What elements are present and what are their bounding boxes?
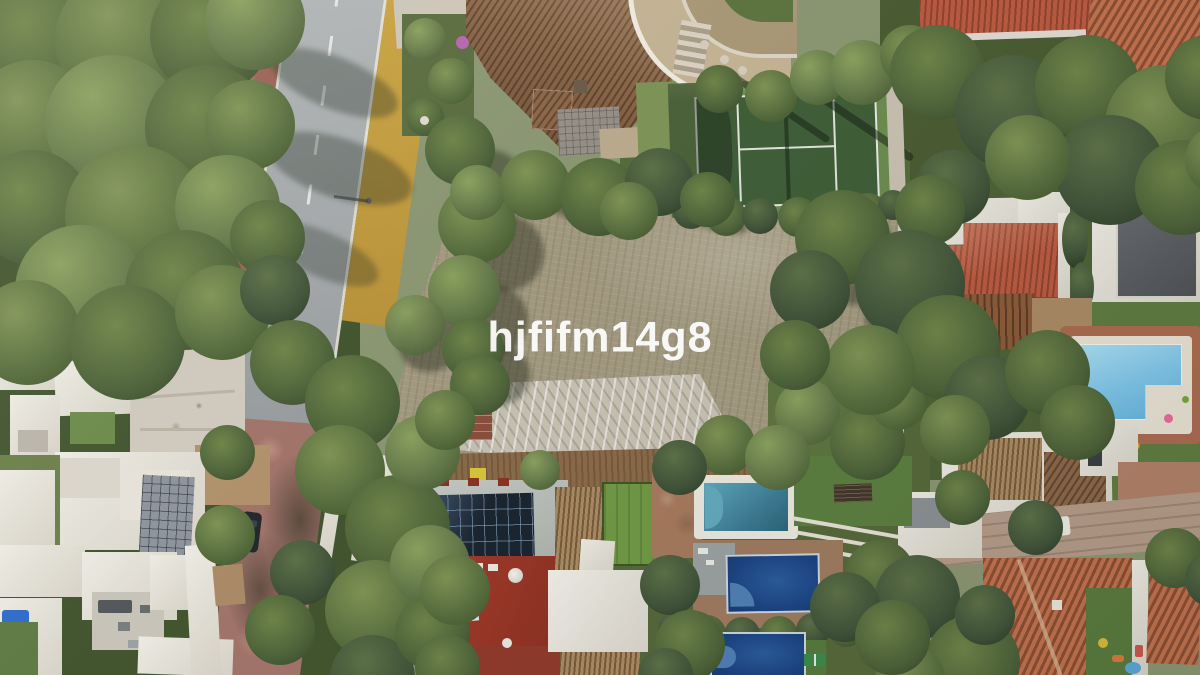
garden-bench (834, 483, 873, 502)
aerial-photo: hjfifm14g8 (0, 0, 1200, 675)
plunge-pool (704, 483, 788, 531)
stepping-stone (700, 40, 709, 49)
kiddie-pool (1125, 662, 1141, 674)
garden-toy (1098, 638, 1108, 648)
ping-pong-table (804, 654, 826, 666)
modern-white-roof (548, 570, 648, 652)
deep-pool-upper (725, 553, 820, 614)
flamingo-float (1164, 414, 1173, 423)
stepping-stone (720, 55, 729, 64)
watermark-text: hjfifm14g8 (487, 314, 712, 363)
terrace-sofa (98, 600, 132, 613)
garden-slide (1135, 645, 1143, 657)
garden-statue (420, 116, 429, 125)
satellite-dish (502, 638, 512, 648)
satellite-dish (508, 568, 523, 583)
garden-ball (1182, 396, 1189, 403)
roof-chimney (1052, 600, 1062, 610)
garden-toy (1112, 655, 1124, 662)
villa-chimney (574, 80, 587, 93)
stepping-stone (738, 66, 747, 75)
villa-porch (599, 127, 643, 159)
